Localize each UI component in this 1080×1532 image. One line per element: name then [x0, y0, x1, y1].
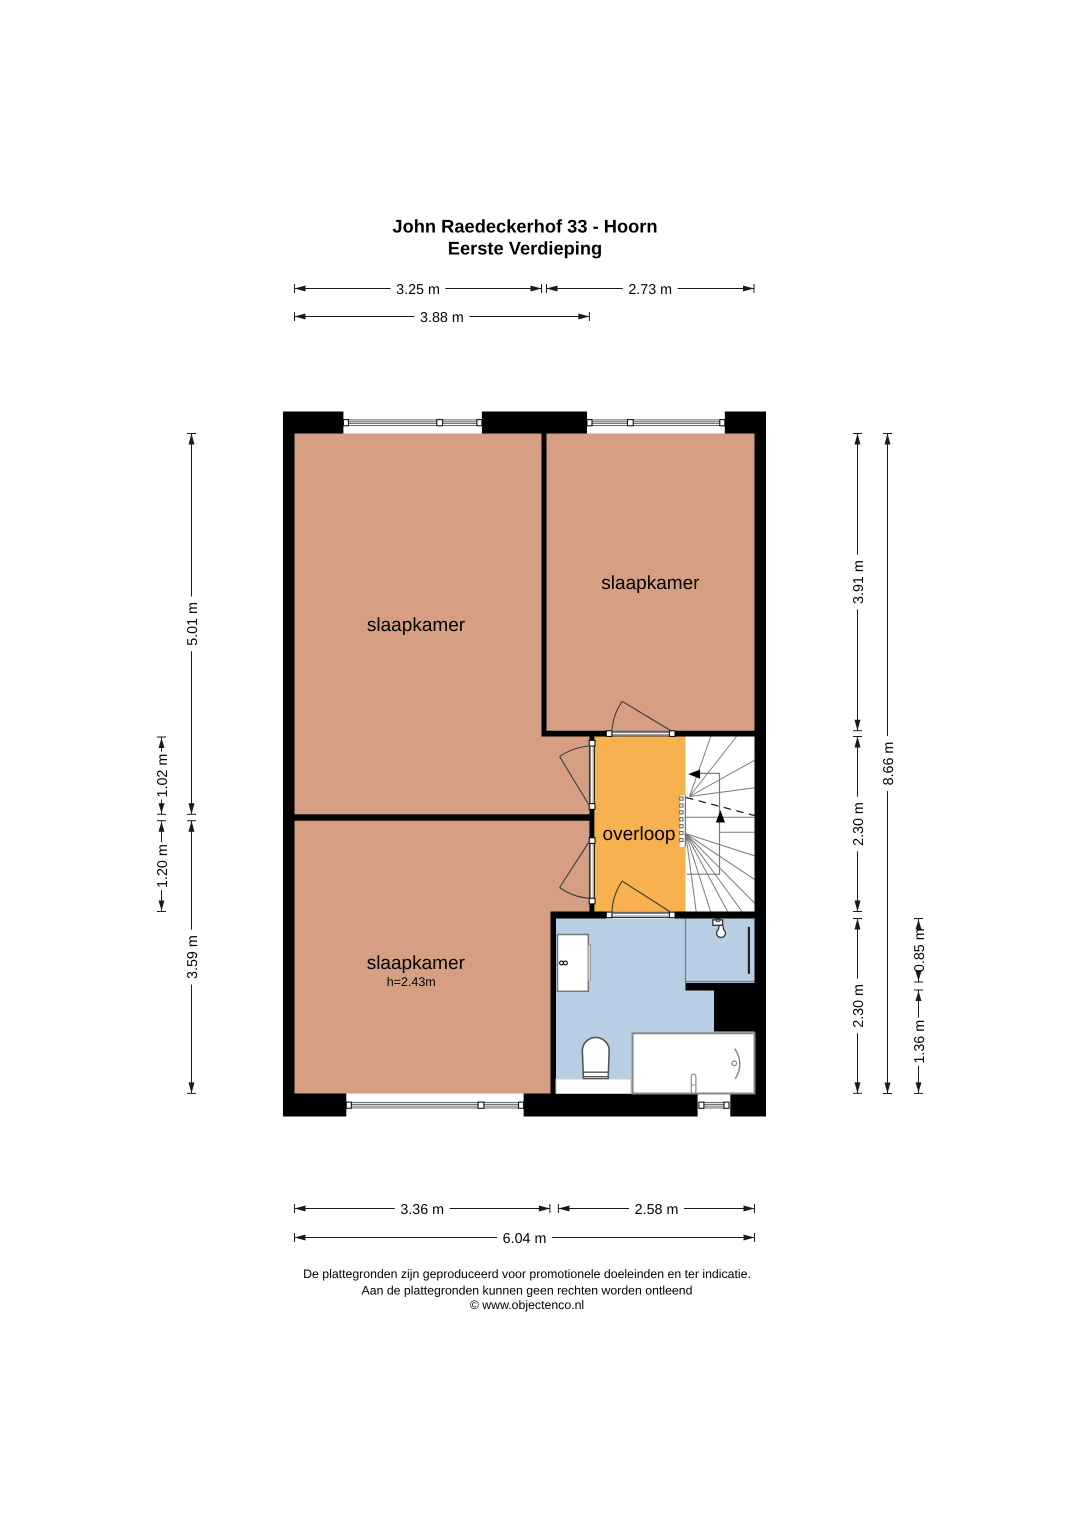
svg-text:3.88 m: 3.88 m — [420, 310, 464, 326]
svg-text:Aan de plattegronden kunnen ge: Aan de plattegronden kunnen geen rechten… — [362, 1283, 693, 1297]
svg-text:3.91 m: 3.91 m — [851, 560, 867, 604]
svg-text:slaapkamer: slaapkamer — [367, 953, 466, 974]
svg-text:h=2.43m: h=2.43m — [387, 975, 436, 989]
svg-text:1.36 m: 1.36 m — [912, 1020, 928, 1064]
svg-text:Eerste Verdieping: Eerste Verdieping — [448, 238, 602, 259]
svg-text:3.36 m: 3.36 m — [400, 1202, 444, 1218]
svg-text:slaapkamer: slaapkamer — [601, 573, 700, 594]
svg-text:overloop: overloop — [603, 824, 676, 845]
svg-text:2.58 m: 2.58 m — [635, 1202, 679, 1218]
svg-text:© www.objectenco.nl: © www.objectenco.nl — [470, 1298, 584, 1312]
svg-text:1.02 m: 1.02 m — [155, 754, 171, 798]
svg-text:8.66 m: 8.66 m — [881, 742, 897, 786]
svg-text:slaapkamer: slaapkamer — [367, 615, 466, 636]
svg-text:5.01 m: 5.01 m — [185, 602, 201, 646]
svg-text:John Raedeckerhof 33 - Hoorn: John Raedeckerhof 33 - Hoorn — [392, 216, 657, 237]
svg-text:1.20 m: 1.20 m — [155, 844, 171, 888]
svg-text:0.85 m: 0.85 m — [912, 928, 928, 972]
svg-text:6.04 m: 6.04 m — [503, 1231, 547, 1247]
svg-text:2.73 m: 2.73 m — [628, 282, 672, 298]
svg-text:3.59 m: 3.59 m — [185, 935, 201, 979]
svg-text:De plattegronden zijn geproduc: De plattegronden zijn geproduceerd voor … — [303, 1267, 751, 1281]
svg-text:3.25 m: 3.25 m — [396, 282, 440, 298]
svg-text:2.30 m: 2.30 m — [851, 802, 867, 846]
svg-text:2.30 m: 2.30 m — [851, 984, 867, 1028]
